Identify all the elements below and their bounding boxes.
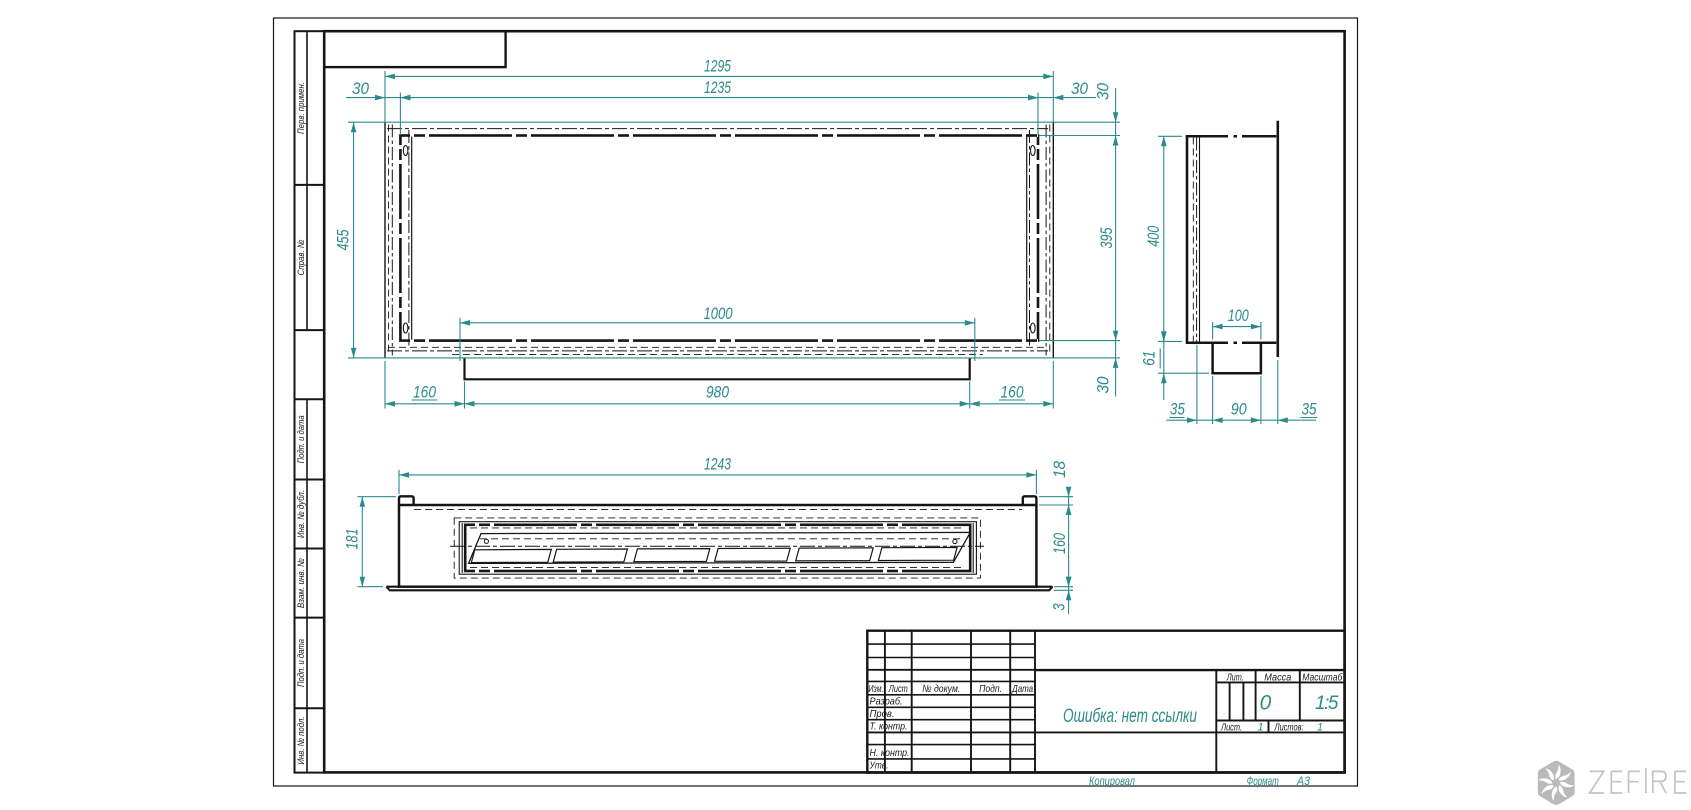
svg-text:Ошибка: нет ссылки: Ошибка: нет ссылки <box>1063 706 1197 727</box>
svg-text:980: 980 <box>706 382 729 401</box>
svg-text:1295: 1295 <box>704 57 731 76</box>
svg-text:30: 30 <box>1071 79 1088 98</box>
svg-text:90: 90 <box>1231 400 1247 419</box>
svg-text:1:5: 1:5 <box>1315 693 1339 714</box>
svg-text:30: 30 <box>1094 83 1113 100</box>
svg-text:Пров.: Пров. <box>870 708 895 720</box>
svg-text:181: 181 <box>343 529 362 550</box>
svg-text:0: 0 <box>1260 692 1272 715</box>
svg-text:30: 30 <box>1094 376 1113 393</box>
svg-text:А3: А3 <box>1296 774 1310 788</box>
svg-text:1243: 1243 <box>704 455 731 474</box>
svg-text:1: 1 <box>1317 722 1323 734</box>
svg-text:Подп. и дата: Подп. и дата <box>296 639 307 687</box>
svg-text:Изм.: Изм. <box>869 683 884 695</box>
svg-text:Лист: Лист <box>888 683 908 695</box>
svg-text:Взам. инв. №: Взам. инв. № <box>296 558 307 608</box>
svg-text:№ докум.: № докум. <box>922 683 960 695</box>
svg-text:35: 35 <box>1302 400 1317 419</box>
svg-text:Т. контр.: Т. контр. <box>870 721 908 733</box>
svg-text:Формат: Формат <box>1247 774 1279 788</box>
svg-text:Перв. примен.: Перв. примен. <box>296 82 307 134</box>
svg-text:400: 400 <box>1144 225 1163 246</box>
svg-text:Масса: Масса <box>1264 673 1291 684</box>
svg-text:455: 455 <box>334 229 353 250</box>
svg-text:1: 1 <box>1258 722 1264 734</box>
svg-text:Копировал: Копировал <box>1089 774 1135 788</box>
svg-text:160: 160 <box>1050 533 1069 554</box>
svg-text:160: 160 <box>413 382 436 401</box>
svg-text:Разраб.: Разраб. <box>870 696 903 708</box>
svg-text:18: 18 <box>1050 461 1069 478</box>
svg-text:Лит.: Лит. <box>1226 673 1244 684</box>
svg-text:Дата: Дата <box>1011 683 1033 695</box>
svg-text:35: 35 <box>1170 400 1185 419</box>
svg-text:1000: 1000 <box>704 304 733 323</box>
svg-text:61: 61 <box>1140 351 1159 366</box>
svg-text:Н. контр.: Н. контр. <box>870 747 910 759</box>
svg-text:160: 160 <box>1001 382 1024 401</box>
svg-text:100: 100 <box>1228 306 1249 325</box>
svg-text:Подп.: Подп. <box>979 683 1002 695</box>
svg-text:1235: 1235 <box>704 78 731 97</box>
svg-text:Лист.: Лист. <box>1220 723 1242 734</box>
svg-text:395: 395 <box>1097 227 1116 248</box>
svg-text:3: 3 <box>1050 603 1069 610</box>
svg-text:Подп. и дата: Подп. и дата <box>296 415 307 463</box>
svg-text:Инв. № дубл.: Инв. № дубл. <box>296 490 307 538</box>
svg-text:Листов:: Листов: <box>1274 723 1304 734</box>
svg-text:30: 30 <box>352 79 369 98</box>
svg-text:Масштаб: Масштаб <box>1302 672 1342 684</box>
svg-text:Утв.: Утв. <box>869 760 889 772</box>
svg-text:Инв. № подл.: Инв. № подл. <box>296 717 307 765</box>
svg-text:Справ. №: Справ. № <box>296 240 307 276</box>
